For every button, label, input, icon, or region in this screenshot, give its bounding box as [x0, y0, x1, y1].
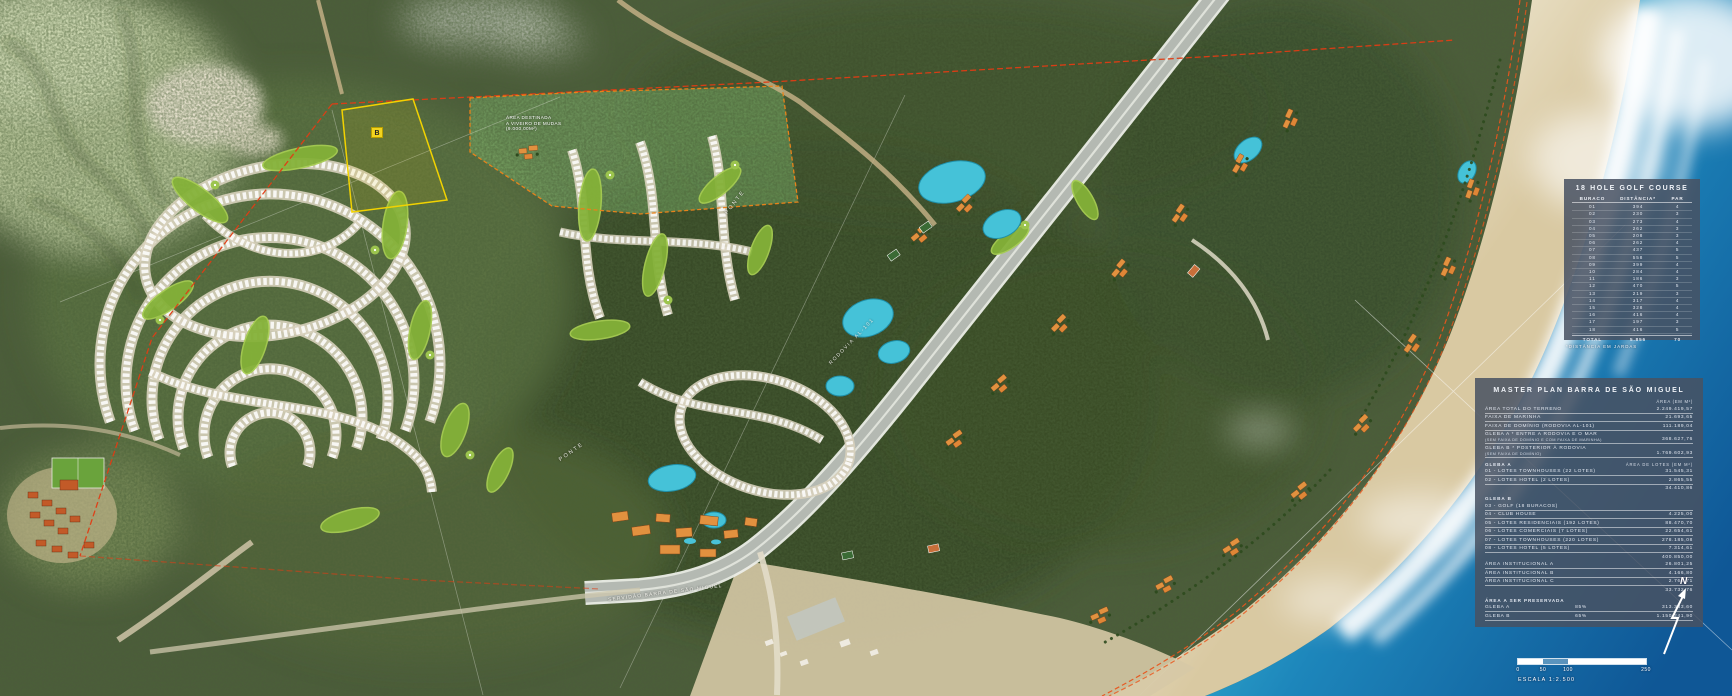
map-artwork — [0, 0, 1732, 696]
golf-row: 143174 — [1572, 298, 1692, 305]
golf-row: 093994 — [1572, 262, 1692, 269]
golf-row: 111863 — [1572, 276, 1692, 283]
golf-row: 032734 — [1572, 219, 1692, 226]
golf-footnote: *DISTÂNCIA EM JARDAS — [1566, 344, 1637, 349]
scale-label: ESCALA 1:2.500 — [1518, 677, 1575, 683]
scale-bar-segments — [1518, 659, 1646, 664]
golf-row: 164164 — [1572, 312, 1692, 319]
col-par: PAR — [1663, 196, 1692, 202]
scale-tick-0: 0 — [1516, 667, 1519, 673]
golf-row: 184165 — [1572, 327, 1692, 334]
golf-row: 042623 — [1572, 226, 1692, 233]
scale-tick-250: 250 — [1641, 667, 1651, 673]
golf-course-panel: 18 HOLE GOLF COURSE BURACO DISTÂNCIA* PA… — [1564, 179, 1700, 340]
row-faixa-marinha: FAIXA DE MARINHA 21.693,65 — [1485, 414, 1693, 423]
viveiro-label: ÁREA DESTINADA A VIVEIRO DE MUDAS (9.000… — [506, 115, 561, 132]
golf-row: 022303 — [1572, 211, 1692, 218]
col-distance: DISTÂNCIA* — [1613, 196, 1663, 202]
row-lot-01: 01 - LOTES TOWNHOUSES (22 LOTES) 31.545,… — [1485, 468, 1693, 477]
row-subtotal-a: 34.410,86 — [1485, 485, 1693, 493]
golf-panel-title: 18 HOLE GOLF COURSE — [1572, 185, 1692, 192]
row-lot-03: 03 - GOLF (18 BURACOS) — [1485, 502, 1693, 511]
golf-total-row: TOTAL 5.856 70 — [1572, 335, 1692, 344]
golf-row: 171973 — [1572, 319, 1692, 326]
row-lot-08: 08 - LOTES HOTEL (5 LOTES) 7.314,61 — [1485, 545, 1693, 554]
scale-tick-50: 50 — [1540, 667, 1547, 673]
row-lot-05: 05 - LOTES RESIDENCIAIS (192 LOTES) 88.4… — [1485, 519, 1693, 528]
viveiro-line3: (9.000,00M²) — [506, 126, 561, 132]
row-faixa-dominio: FAIXA DE DOMÍNIO (RODOVIA AL-101) 111.18… — [1485, 422, 1693, 431]
golf-row: 102844 — [1572, 269, 1692, 276]
golf-row: 132193 — [1572, 291, 1692, 298]
row-lot-04: 04 - CLUB HOUSE 4.225,00 — [1485, 511, 1693, 520]
row-subtotal-b: 400.850,00 — [1485, 553, 1693, 561]
golf-row: 062624 — [1572, 240, 1692, 247]
col-hole: BURACO — [1572, 196, 1613, 202]
row-lot-02: 02 - LOTES HOTEL (2 LOTES) 2.865,55 — [1485, 476, 1693, 485]
golf-row: 013944 — [1572, 204, 1692, 211]
row-gleba-b: GLEBA B * POSTERIOR À RODOVIA(SEM FAIXA … — [1485, 444, 1693, 458]
golf-row: 074375 — [1572, 247, 1692, 254]
golf-row: 085585 — [1572, 255, 1692, 262]
scale-tick-100: 100 — [1563, 667, 1573, 673]
row-area-total: ÁREA TOTAL DO TERRENO 2.249.419,57 — [1485, 405, 1693, 414]
scale-bar: 0 50 100 250 ESCALA 1:2.500 — [1518, 655, 1668, 687]
north-arrow: N — [1652, 576, 1700, 660]
row-gleba-a: GLEBA A * ENTRE A RODOVIA E O MAR(SEM FA… — [1485, 431, 1693, 445]
north-arrow-icon — [1652, 586, 1700, 660]
golf-table-header: BURACO DISTÂNCIA* PAR — [1572, 196, 1692, 203]
masterplan-map: ÁREA DESTINADA A VIVEIRO DE MUDAS (9.000… — [0, 0, 1732, 696]
golf-row: 153284 — [1572, 305, 1692, 312]
master-panel-title: MASTER PLAN BARRA DE SÃO MIGUEL — [1485, 387, 1693, 394]
row-lot-07: 07 - LOTES TOWNHOUSES (220 LOTES) 278.18… — [1485, 536, 1693, 545]
row-inst-a: ÁREA INSTITUCIONAL A 26.801,25 — [1485, 561, 1693, 570]
golf-row: 124705 — [1572, 283, 1692, 290]
parcel-b-badge: B — [371, 127, 383, 138]
golf-row: 052083 — [1572, 233, 1692, 240]
row-lot-06: 06 - LOTES COMERCIAIS (7 LOTES) 22.654,6… — [1485, 528, 1693, 537]
